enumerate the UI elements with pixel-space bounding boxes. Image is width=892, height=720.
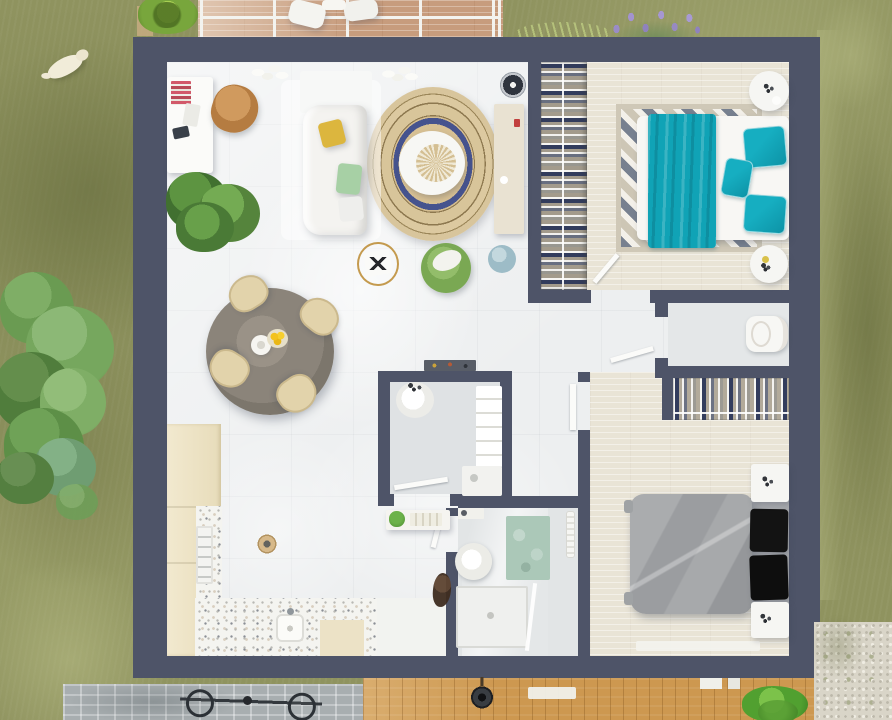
- sofa-pillow-green: [335, 163, 362, 195]
- bathroom-shelf-dot: [461, 510, 467, 516]
- white-flower-decor-2: [377, 65, 423, 83]
- gold-table-vmark: [369, 257, 387, 270]
- wall-closet-stub: [662, 378, 673, 420]
- wall-wc-west-a: [655, 303, 668, 317]
- bedroom2-nightstand-top-decor: [760, 474, 776, 488]
- laundry-machine-dial: [470, 474, 478, 482]
- bedroom2-black-pillow-1: [750, 509, 789, 553]
- bedroom1-nightstand-top-decor: [762, 82, 776, 94]
- bedroom1-teal-blanket: [648, 114, 716, 248]
- bedroom1-closet-rail: [541, 62, 587, 290]
- kitchen-cooktop: [196, 526, 213, 584]
- wall-wc-south: [655, 366, 789, 378]
- wall-laundry-west: [378, 371, 390, 506]
- plant-big-3: [176, 202, 234, 252]
- bedroom1-nightstand-top-lamp: [772, 96, 781, 105]
- bicycle-pedal: [243, 696, 252, 705]
- wall-living-bedroom1: [528, 62, 541, 303]
- bedroom2-black-pillow-2: [749, 554, 789, 600]
- wall-laundry-south-a: [378, 494, 394, 506]
- bathroom-shower-drain: [487, 612, 494, 619]
- blue-pouf: [488, 245, 516, 273]
- wall-bedroom1-south-b: [650, 290, 789, 303]
- floorplan-render-scene: [0, 0, 892, 720]
- bedroom2-nightstand-bottom-decor: [758, 612, 774, 624]
- white-flower-decor-1: [246, 63, 294, 82]
- kitchen-counter-white: [377, 598, 446, 656]
- hall-console-plant: [389, 511, 405, 527]
- tree-foliage-8: [56, 484, 98, 520]
- porch-doormat-2: [700, 678, 722, 689]
- wall-laundry-north: [390, 371, 512, 382]
- console-white-dot: [500, 176, 508, 184]
- grass-right-dark: [838, 120, 892, 550]
- kitchen-island: [320, 620, 364, 656]
- bedroom1-nightstand-bottom-decor: [760, 262, 772, 272]
- bedroom2-duvet-tab-1: [624, 500, 633, 513]
- wall-bedroom1-south-a: [541, 290, 591, 303]
- palm-plant-core: [150, 2, 184, 28]
- wall-bathroom-north: [458, 496, 578, 508]
- door-bedroom2: [570, 384, 576, 430]
- laundry-shelves: [476, 386, 502, 468]
- laundry-basin-faucets: [404, 382, 426, 392]
- laundry-washing-machine: [462, 466, 502, 496]
- hall-shoe-rack: [424, 360, 476, 371]
- kitchen-faucet: [287, 608, 294, 615]
- sofa-pillow-white: [338, 196, 364, 222]
- wall-bedroom2-west-b: [578, 430, 590, 656]
- tree-foliage-7: [0, 452, 54, 504]
- bedroom2-gray-duvet: [630, 494, 752, 614]
- mint-bath-rug: [506, 516, 550, 580]
- ceiling-fan: [499, 71, 527, 99]
- coffee-table-rattan-decor: [416, 144, 456, 182]
- porch-bush-dark: [758, 700, 798, 720]
- kitchen-sink: [276, 614, 304, 642]
- wall-bedroom2-west-a: [578, 372, 590, 382]
- bathroom-towel-radiator: [566, 511, 575, 558]
- porch-doormat-3: [728, 678, 740, 689]
- console-red-item: [514, 119, 520, 127]
- bedroom2-closet-rail: [673, 378, 789, 420]
- bedroom1-teal-pillow-2: [743, 194, 788, 235]
- lemon-bowl: [267, 329, 288, 348]
- bedroom2-duvet-tab-2: [624, 592, 633, 605]
- porch-doormat-1: [528, 687, 576, 699]
- bedroom2-runner-rug: [636, 641, 760, 651]
- desk-books: [171, 81, 191, 105]
- gravel-moss: [810, 614, 866, 678]
- kitchen-pendant-lamp: [256, 533, 278, 555]
- terrace-table: [322, 0, 346, 10]
- porch-lantern: [470, 680, 494, 710]
- bathroom-round-basin: [455, 543, 492, 580]
- grass-top-right-pale: [810, 0, 892, 110]
- hall-console-towels: [410, 513, 442, 526]
- wc-toilet: [746, 316, 788, 352]
